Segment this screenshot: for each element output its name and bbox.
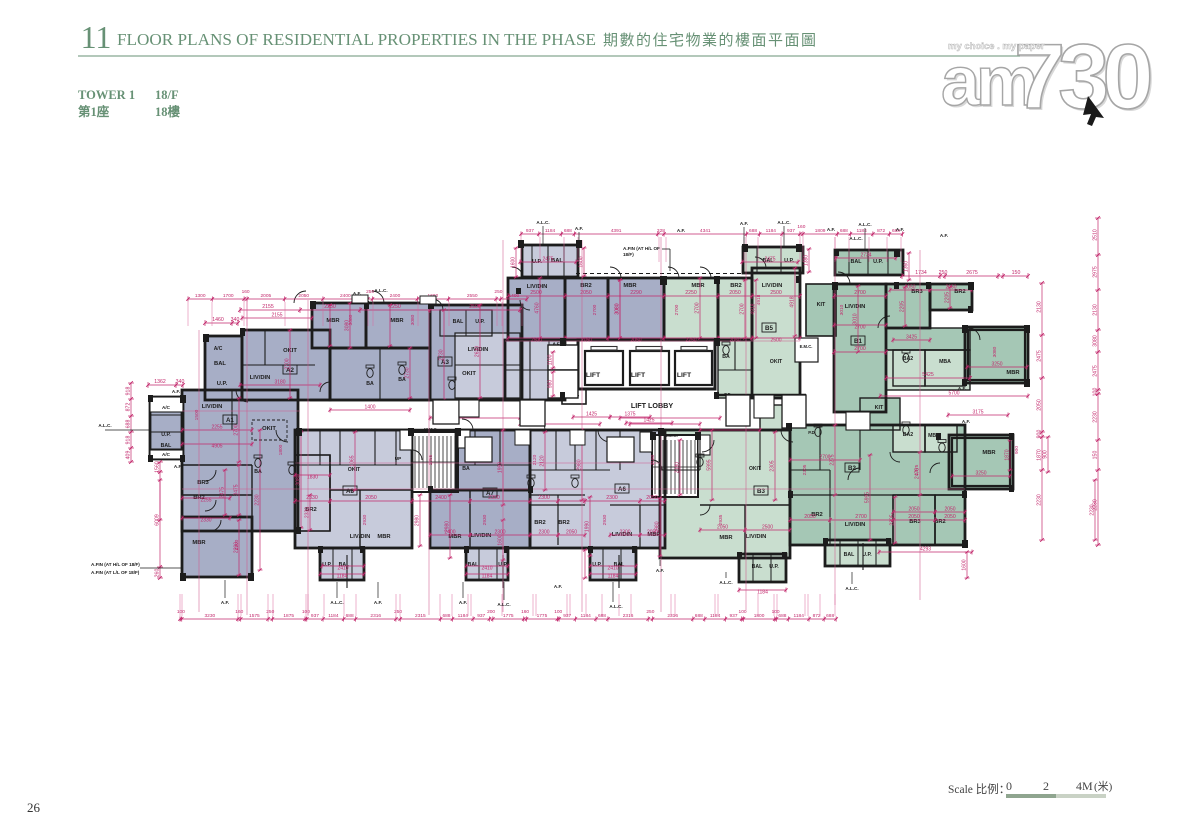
svg-text:2230: 2230 <box>1090 504 1096 515</box>
svg-text:18/F): 18/F) <box>623 252 634 257</box>
svg-text:BAL: BAL <box>844 552 855 558</box>
svg-text:1065: 1065 <box>350 455 356 466</box>
svg-text:BAL: BAL <box>468 562 479 568</box>
svg-text:A.L.C.: A.L.C. <box>609 604 622 609</box>
svg-text:4918: 4918 <box>756 294 762 305</box>
svg-text:2700: 2700 <box>854 290 866 296</box>
svg-text:2980: 2980 <box>577 459 583 470</box>
svg-text:150: 150 <box>1012 270 1021 276</box>
svg-text:2050: 2050 <box>804 514 816 520</box>
svg-text:OKIT: OKIT <box>262 426 276 432</box>
svg-text:1734: 1734 <box>915 270 927 276</box>
svg-text:1870: 1870 <box>1005 449 1011 460</box>
svg-text:MBR: MBR <box>623 283 637 289</box>
svg-text:4918: 4918 <box>751 303 757 314</box>
svg-text:2475: 2475 <box>764 257 775 263</box>
svg-text:A/C: A/C <box>162 452 171 457</box>
svg-text:409: 409 <box>126 451 132 460</box>
svg-text:A.L.C.: A.L.C. <box>497 602 510 607</box>
svg-text:MBR: MBR <box>377 534 391 540</box>
svg-text:LIV/DIN: LIV/DIN <box>471 533 492 539</box>
svg-text:LIV/DIN: LIV/DIN <box>250 375 271 381</box>
svg-text:200: 200 <box>487 609 495 615</box>
svg-text:250: 250 <box>394 609 402 615</box>
svg-text:872: 872 <box>813 613 821 619</box>
svg-text:2155: 2155 <box>271 313 282 319</box>
svg-text:250: 250 <box>266 609 274 615</box>
svg-text:A.F.: A.F. <box>940 233 948 238</box>
svg-text:1990: 1990 <box>585 521 591 532</box>
svg-text:2200: 2200 <box>234 539 240 550</box>
svg-text:2980: 2980 <box>415 515 421 526</box>
svg-text:2935: 2935 <box>718 514 724 525</box>
svg-text:1809: 1809 <box>815 228 826 234</box>
svg-text:2300: 2300 <box>606 495 618 501</box>
svg-text:2230: 2230 <box>1037 494 1043 506</box>
svg-text:2050: 2050 <box>729 338 740 344</box>
svg-text:BAL: BAL <box>752 564 763 570</box>
svg-text:2250: 2250 <box>685 290 697 296</box>
svg-text:2410: 2410 <box>337 566 348 572</box>
svg-text:2205: 2205 <box>900 301 906 312</box>
svg-text:2050: 2050 <box>1037 399 1043 411</box>
svg-text:A.L.C.: A.L.C. <box>777 220 790 225</box>
svg-text:B5: B5 <box>765 325 773 332</box>
svg-text:1600: 1600 <box>962 559 968 570</box>
svg-text:A.FIN (AT H/L OF: A.FIN (AT H/L OF <box>623 246 660 251</box>
svg-text:MBR: MBR <box>326 318 340 324</box>
svg-text:BAL: BAL <box>850 259 862 265</box>
svg-text:2500: 2500 <box>531 338 542 344</box>
svg-text:2410: 2410 <box>481 566 492 572</box>
svg-text:3250: 3250 <box>991 362 1002 368</box>
svg-text:2155: 2155 <box>262 304 274 310</box>
svg-text:U.P.: U.P. <box>161 432 171 438</box>
svg-text:my choice . my paper: my choice . my paper <box>948 41 1045 52</box>
svg-text:1800: 1800 <box>278 444 284 455</box>
svg-text:A.L.C.: A.L.C. <box>374 288 387 293</box>
svg-text:MBR: MBR <box>390 318 404 324</box>
svg-text:A.L.C.: A.L.C. <box>330 600 343 605</box>
svg-text:1184: 1184 <box>608 574 619 580</box>
svg-text:688: 688 <box>840 228 848 234</box>
svg-text:688: 688 <box>749 228 757 234</box>
svg-text:937: 937 <box>730 613 738 619</box>
svg-text:A/C: A/C <box>214 346 223 352</box>
svg-text:U.P.: U.P. <box>873 259 883 265</box>
svg-text:BAL: BAL <box>214 361 226 367</box>
svg-text:1362: 1362 <box>154 379 166 385</box>
svg-text:1184: 1184 <box>482 574 493 580</box>
svg-text:2475: 2475 <box>542 257 553 263</box>
svg-text:UP: UP <box>395 456 401 461</box>
svg-text:MBR: MBR <box>982 450 996 456</box>
svg-text:2700: 2700 <box>740 303 746 314</box>
svg-text:1360: 1360 <box>904 261 910 272</box>
svg-text:1425: 1425 <box>586 412 597 418</box>
svg-text:LIFT: LIFT <box>631 372 646 379</box>
svg-text:1775: 1775 <box>503 613 514 619</box>
svg-text:2300: 2300 <box>494 530 505 536</box>
svg-text:100: 100 <box>1093 388 1099 397</box>
svg-text:A.F.: A.F. <box>221 600 229 605</box>
svg-text:1600: 1600 <box>579 256 585 267</box>
svg-text:18樓: 18樓 <box>155 104 181 119</box>
svg-text:2050: 2050 <box>944 514 956 520</box>
svg-text:5995: 5995 <box>707 459 713 470</box>
svg-text:688: 688 <box>826 613 834 619</box>
svg-text:BA: BA <box>254 469 262 475</box>
svg-text:OKIT: OKIT <box>462 371 476 377</box>
svg-text:A.L.C.: A.L.C. <box>719 580 732 585</box>
svg-text:1375: 1375 <box>624 412 635 418</box>
svg-text:3080: 3080 <box>615 303 621 314</box>
svg-text:FLOOR PLANS OF RESIDENTIAL PRO: FLOOR PLANS OF RESIDENTIAL PROPERTIES IN… <box>117 30 596 49</box>
svg-text:688: 688 <box>695 613 703 619</box>
svg-text:A.F.: A.F. <box>677 228 685 233</box>
svg-text:LIV/DIN: LIV/DIN <box>202 404 223 410</box>
svg-text:2290: 2290 <box>630 290 642 296</box>
svg-text:688: 688 <box>126 420 132 429</box>
svg-text:3080: 3080 <box>992 346 998 357</box>
svg-text:11: 11 <box>81 19 112 55</box>
svg-text:4M: 4M <box>1076 779 1093 793</box>
svg-text:A.F.: A.F. <box>958 386 966 391</box>
svg-text:340: 340 <box>231 317 240 323</box>
svg-text:1575: 1575 <box>249 613 260 619</box>
svg-text:期數的住宅物業的樓面平面圖: 期數的住宅物業的樓面平面圖 <box>603 32 818 49</box>
svg-text:A.L.C.: A.L.C. <box>849 236 862 241</box>
svg-text:688: 688 <box>346 613 354 619</box>
svg-text:2475: 2475 <box>914 464 920 475</box>
svg-text:2510: 2510 <box>1093 229 1099 241</box>
svg-text:3475: 3475 <box>234 484 240 495</box>
svg-text:LIFT LOBBY: LIFT LOBBY <box>631 401 674 410</box>
svg-text:2675: 2675 <box>966 270 978 276</box>
svg-text:BAL: BAL <box>453 319 464 325</box>
svg-text:2305: 2305 <box>770 460 776 471</box>
svg-text:MBA: MBA <box>939 359 951 365</box>
svg-text:1184: 1184 <box>757 590 768 596</box>
svg-text:2120: 2120 <box>532 454 538 465</box>
svg-text:2300: 2300 <box>488 495 500 501</box>
svg-text:3010: 3010 <box>839 304 845 315</box>
svg-text:2205: 2205 <box>945 292 951 303</box>
svg-text:2005: 2005 <box>261 293 272 299</box>
svg-text:5425: 5425 <box>922 372 934 378</box>
svg-text:2050: 2050 <box>646 495 658 501</box>
svg-text:A.F.: A.F. <box>575 226 583 231</box>
svg-text:2230: 2230 <box>255 494 261 505</box>
svg-text:150: 150 <box>1093 451 1099 460</box>
svg-text:250: 250 <box>366 289 374 295</box>
svg-text:Scale 比例：: Scale 比例： <box>948 782 1010 796</box>
svg-text:A.FIN (AT H/L OF 18/F): A.FIN (AT H/L OF 18/F) <box>91 562 140 567</box>
svg-text:BA2: BA2 <box>903 432 913 438</box>
svg-text:2305: 2305 <box>802 464 808 475</box>
svg-text:1990: 1990 <box>498 462 504 473</box>
svg-text:第1座: 第1座 <box>78 104 110 119</box>
svg-text:4905: 4905 <box>211 444 222 450</box>
svg-text:937: 937 <box>563 613 571 619</box>
svg-text:3230: 3230 <box>204 613 215 619</box>
svg-text:A.F.: A.F. <box>827 227 835 232</box>
svg-text:2180: 2180 <box>650 454 656 465</box>
svg-text:2500: 2500 <box>762 525 773 531</box>
svg-text:160: 160 <box>521 609 529 615</box>
svg-text:A.F.: A.F. <box>656 568 664 573</box>
svg-text:328: 328 <box>657 228 665 234</box>
svg-text:1600: 1600 <box>511 257 517 268</box>
svg-text:1500: 1500 <box>194 409 200 420</box>
svg-text:MBR: MBR <box>691 283 705 289</box>
svg-text:A.F.: A.F. <box>174 464 182 469</box>
svg-text:A.F.: A.F. <box>172 389 180 394</box>
svg-text:A.F.: A.F. <box>896 227 904 232</box>
svg-text:2050: 2050 <box>908 507 919 513</box>
svg-text:2315: 2315 <box>415 613 426 619</box>
svg-text:OKIT: OKIT <box>348 467 361 473</box>
svg-text:MBR: MBR <box>192 540 206 546</box>
svg-text:100: 100 <box>177 609 185 615</box>
svg-text:3175: 3175 <box>972 410 983 416</box>
svg-text:U.P.: U.P. <box>769 564 779 570</box>
svg-text:2630: 2630 <box>475 346 481 357</box>
svg-text:BAL: BAL <box>161 443 172 449</box>
svg-text:2475: 2475 <box>1093 365 1099 377</box>
svg-text:1065: 1065 <box>428 454 434 465</box>
svg-text:2275: 2275 <box>830 454 836 465</box>
svg-text:1560: 1560 <box>155 461 161 473</box>
svg-text:2550: 2550 <box>467 293 478 299</box>
svg-text:1460: 1460 <box>212 317 224 323</box>
svg-text:918: 918 <box>126 387 132 396</box>
svg-text:2180: 2180 <box>675 462 681 473</box>
svg-text:1184: 1184 <box>545 228 556 234</box>
svg-text:LIV/DIN: LIV/DIN <box>350 534 371 540</box>
svg-text:A6: A6 <box>618 486 626 493</box>
svg-text:LIV/DIN: LIV/DIN <box>845 304 866 310</box>
svg-text:TOWER 1: TOWER 1 <box>78 88 135 102</box>
svg-text:5995: 5995 <box>865 492 871 503</box>
svg-text:3475: 3475 <box>220 487 226 498</box>
svg-text:2300: 2300 <box>538 530 549 536</box>
svg-text:U.P.: U.P. <box>862 552 872 558</box>
svg-text:937: 937 <box>477 613 485 619</box>
svg-text:2975: 2975 <box>1093 266 1099 278</box>
svg-text:2330: 2330 <box>305 507 311 518</box>
svg-text:2400: 2400 <box>435 495 447 501</box>
svg-text:A.F.: A.F. <box>459 600 467 605</box>
svg-text:2300: 2300 <box>538 495 550 501</box>
svg-text:BR2: BR2 <box>730 283 742 289</box>
svg-text:2316: 2316 <box>370 613 381 619</box>
svg-text:4760: 4760 <box>535 302 541 313</box>
svg-text:2500: 2500 <box>770 290 782 296</box>
svg-text:688: 688 <box>564 228 572 234</box>
svg-text:1600: 1600 <box>498 534 504 545</box>
svg-text:A.F.: A.F. <box>353 291 361 296</box>
svg-text:LIFT: LIFT <box>586 372 601 379</box>
svg-text:U.P.: U.P. <box>784 258 794 264</box>
svg-text:2730: 2730 <box>439 349 445 360</box>
svg-text:3250: 3250 <box>975 471 986 477</box>
svg-text:5700: 5700 <box>948 391 959 397</box>
svg-text:2300: 2300 <box>619 530 630 536</box>
svg-text:2255: 2255 <box>211 425 222 431</box>
svg-text:1400: 1400 <box>364 405 375 411</box>
svg-text:1184: 1184 <box>458 613 469 619</box>
svg-text:937: 937 <box>311 613 319 619</box>
svg-text:A.F.: A.F. <box>374 600 382 605</box>
svg-text:1830: 1830 <box>307 475 318 481</box>
svg-text:2400: 2400 <box>390 293 401 299</box>
svg-text:3080: 3080 <box>1093 335 1099 347</box>
svg-text:2255: 2255 <box>200 498 211 504</box>
svg-text:2050: 2050 <box>365 495 377 501</box>
svg-text:W.M.C.: W.M.C. <box>664 433 678 438</box>
svg-text:A.L.C.: A.L.C. <box>98 423 111 428</box>
svg-text:937: 937 <box>787 228 795 234</box>
svg-text:2130: 2130 <box>1093 304 1099 316</box>
svg-text:4918: 4918 <box>790 296 796 307</box>
svg-text:2930: 2930 <box>602 514 608 525</box>
svg-text:160: 160 <box>235 609 243 615</box>
svg-text:BR2: BR2 <box>558 520 570 526</box>
svg-text:1184: 1184 <box>337 574 348 580</box>
svg-text:100: 100 <box>554 609 562 615</box>
svg-text:2700: 2700 <box>285 358 291 369</box>
svg-text:LIFT: LIFT <box>677 372 692 379</box>
svg-text:3080: 3080 <box>348 314 354 325</box>
svg-text:3180: 3180 <box>274 380 285 386</box>
svg-text:2050: 2050 <box>647 530 658 536</box>
svg-text:1184: 1184 <box>794 613 805 619</box>
svg-text:937: 937 <box>526 228 534 234</box>
svg-text:A.L.C.: A.L.C. <box>858 222 871 227</box>
svg-text:OKIT: OKIT <box>770 359 783 365</box>
svg-text:A1: A1 <box>226 417 234 424</box>
svg-text:(米): (米) <box>1094 780 1113 793</box>
svg-text:3010: 3010 <box>853 313 859 324</box>
svg-text:2050: 2050 <box>581 338 592 344</box>
svg-text:1184: 1184 <box>328 613 339 619</box>
svg-text:250: 250 <box>494 289 502 295</box>
svg-text:1300: 1300 <box>195 293 206 299</box>
svg-text:26: 26 <box>27 800 41 815</box>
svg-text:2700: 2700 <box>854 346 866 352</box>
svg-text:LIV/DIN: LIV/DIN <box>746 534 767 540</box>
svg-text:688: 688 <box>778 613 786 619</box>
svg-text:MBR: MBR <box>719 535 733 541</box>
svg-text:A.F.: A.F. <box>962 419 970 424</box>
svg-text:2700: 2700 <box>674 304 680 315</box>
svg-text:2: 2 <box>1043 779 1049 793</box>
svg-text:2050: 2050 <box>908 514 920 520</box>
svg-text:2330: 2330 <box>200 518 211 524</box>
svg-text:A/C: A/C <box>162 405 171 410</box>
svg-text:1800: 1800 <box>754 613 765 619</box>
svg-text:3425: 3425 <box>906 335 917 341</box>
svg-text:2316: 2316 <box>667 613 678 619</box>
svg-text:W.M.C.: W.M.C. <box>424 427 438 432</box>
svg-text:250: 250 <box>646 609 654 615</box>
svg-text:1100: 1100 <box>548 354 554 365</box>
svg-text:1184: 1184 <box>766 228 777 234</box>
svg-text:2250: 2250 <box>685 338 696 344</box>
svg-text:2050: 2050 <box>566 530 577 536</box>
svg-text:250: 250 <box>939 270 948 276</box>
svg-text:2700: 2700 <box>854 325 865 331</box>
svg-text:872: 872 <box>126 403 132 412</box>
svg-text:4391: 4391 <box>611 228 622 234</box>
svg-text:2980: 2980 <box>445 521 451 532</box>
svg-text:2475: 2475 <box>1037 350 1043 362</box>
svg-text:2230: 2230 <box>1093 411 1099 423</box>
svg-text:OKIT: OKIT <box>749 466 761 472</box>
svg-text:2930: 2930 <box>482 514 488 525</box>
svg-text:2500: 2500 <box>770 338 781 344</box>
svg-text:1425: 1425 <box>643 418 654 424</box>
svg-text:2050: 2050 <box>944 507 955 513</box>
svg-text:KIT: KIT <box>817 302 826 308</box>
svg-text:LIV/DIN: LIV/DIN <box>762 283 783 289</box>
svg-text:688: 688 <box>442 613 450 619</box>
svg-text:B2: B2 <box>848 465 856 472</box>
svg-text:A.F.: A.F. <box>554 584 562 589</box>
svg-text:BA: BA <box>722 354 730 360</box>
svg-text:1775: 1775 <box>537 613 548 619</box>
svg-text:4293: 4293 <box>920 547 931 553</box>
svg-text:340: 340 <box>176 379 185 385</box>
svg-text:980: 980 <box>548 380 554 389</box>
svg-text:2930: 2930 <box>362 514 368 525</box>
svg-text:160: 160 <box>797 224 805 230</box>
svg-text:2410: 2410 <box>607 566 618 572</box>
svg-text:0: 0 <box>1006 779 1012 793</box>
svg-text:E.M.C.: E.M.C. <box>800 344 813 349</box>
svg-text:2050: 2050 <box>729 290 741 296</box>
svg-text:2120: 2120 <box>540 455 546 466</box>
svg-text:1875: 1875 <box>283 613 294 619</box>
svg-text:U.P.: U.P. <box>592 562 602 568</box>
svg-text:2700: 2700 <box>592 304 598 315</box>
svg-text:2700: 2700 <box>695 302 701 313</box>
svg-text:2700: 2700 <box>855 514 867 520</box>
svg-text:2130: 2130 <box>1037 301 1043 313</box>
svg-text:BA: BA <box>462 466 470 472</box>
svg-text:KIT: KIT <box>875 405 884 411</box>
svg-text:U.P.: U.P. <box>217 381 228 387</box>
svg-text:U.P.: U.P. <box>322 562 332 568</box>
svg-text:A.FIN (AT L/L OF 18/F): A.FIN (AT L/L OF 18/F) <box>91 570 140 575</box>
svg-text:2400: 2400 <box>340 293 351 299</box>
svg-text:900: 900 <box>1043 450 1049 459</box>
svg-text:160: 160 <box>242 289 250 295</box>
svg-text:2734: 2734 <box>860 253 871 259</box>
svg-text:18/F: 18/F <box>155 88 179 102</box>
svg-text:918: 918 <box>126 436 132 445</box>
svg-text:2050: 2050 <box>298 293 309 299</box>
svg-text:872: 872 <box>877 228 885 234</box>
svg-text:100: 100 <box>739 609 747 615</box>
svg-text:A.L.C.: A.L.C. <box>536 220 549 225</box>
svg-text:260: 260 <box>155 569 161 578</box>
svg-text:2316: 2316 <box>623 613 634 619</box>
svg-text:LIV/DIN: LIV/DIN <box>845 522 866 528</box>
svg-text:900: 900 <box>1014 446 1020 454</box>
svg-text:MBR: MBR <box>1006 370 1020 376</box>
